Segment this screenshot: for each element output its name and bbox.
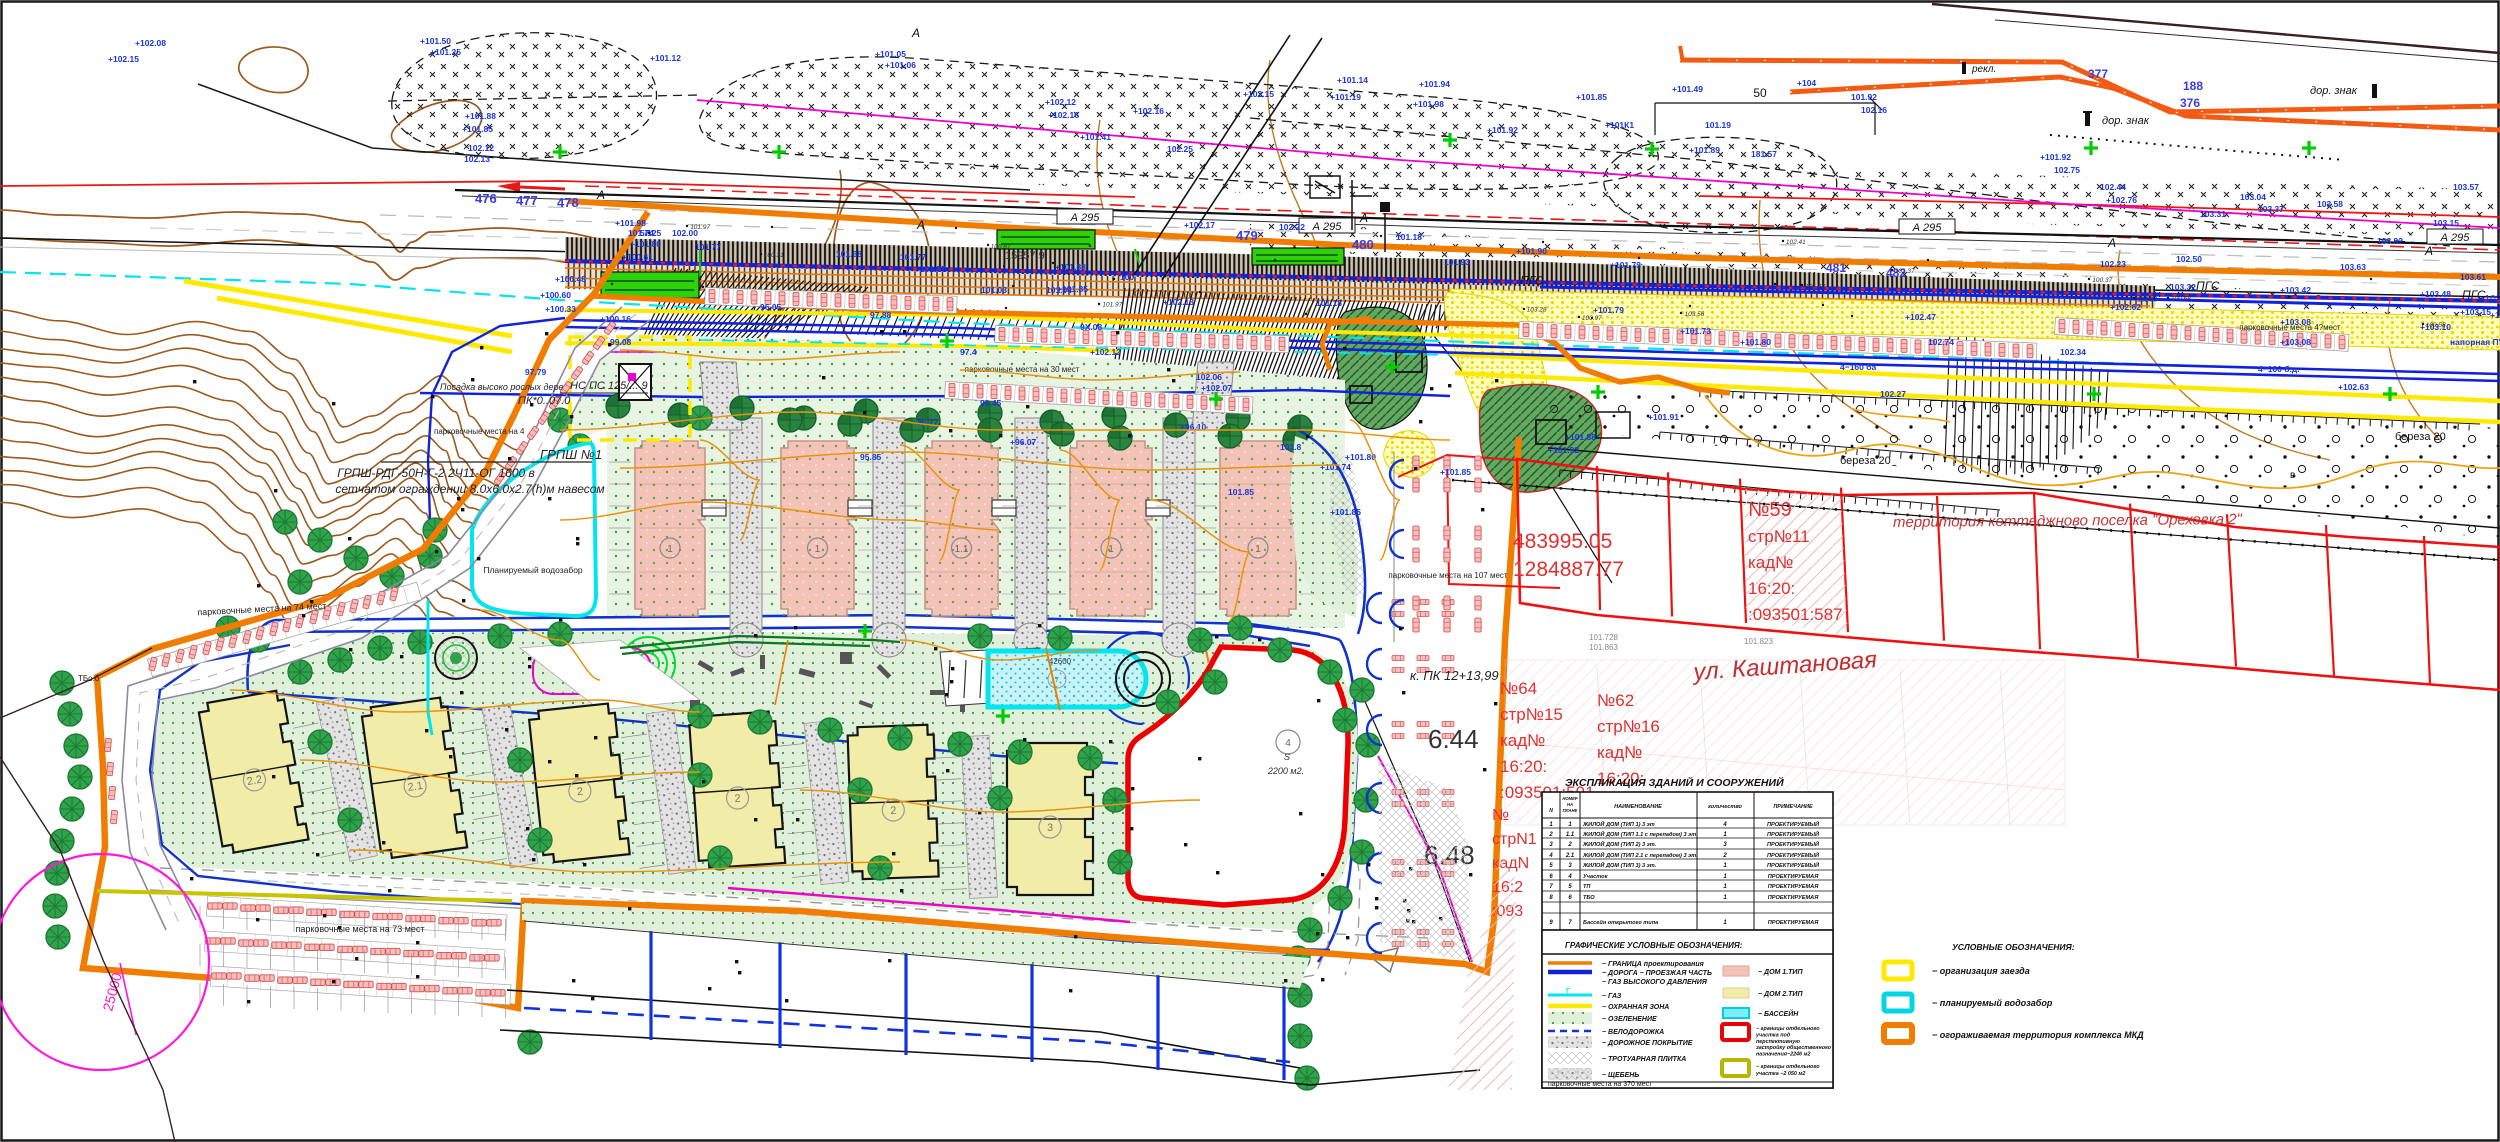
svg-text:4: 4 <box>1722 822 1727 828</box>
svg-text:+101.12: +101.12 <box>650 53 681 63</box>
svg-text:участка −2 050 м2: участка −2 050 м2 <box>1755 1071 1805 1077</box>
svg-text:ПГС: ПГС <box>2196 279 2220 293</box>
svg-text:+101.90: +101.90 <box>1516 246 1547 256</box>
svg-text:+101.50: +101.50 <box>420 36 451 46</box>
svg-text:4: 4 <box>1548 853 1553 859</box>
svg-text:ПРИМЕЧАНИЕ: ПРИМЕЧАНИЕ <box>1773 804 1813 810</box>
svg-text:102.16: 102.16 <box>1861 105 1887 115</box>
svg-text:ЖИЛОЙ ДОМ (ТИП 3) 3 эт.: ЖИЛОЙ ДОМ (ТИП 3) 3 эт. <box>1582 861 1657 869</box>
svg-text:А 295: А 295 <box>1312 221 1343 233</box>
svg-text:участка под: участка под <box>1755 1032 1791 1038</box>
svg-text:4: 4 <box>1285 738 1291 749</box>
svg-text:+102.08: +102.08 <box>135 38 166 48</box>
svg-text:102.34: 102.34 <box>2060 347 2086 357</box>
svg-text:+101.91: +101.91 <box>1648 412 1679 422</box>
svg-text:ПРОЕКТИРУЕМАЯ: ПРОЕКТИРУЕМАЯ <box>1768 920 1820 926</box>
svg-text:+101.49: +101.49 <box>1672 84 1703 94</box>
svg-text:+103.08: +103.08 <box>2280 337 2311 347</box>
svg-text:100.68: 100.68 <box>2171 296 2191 303</box>
svg-text:101.97: 101.97 <box>690 224 710 231</box>
svg-text:2: 2 <box>1548 832 1553 838</box>
svg-text:− ДОРОЖНОЕ ПОКРЫТИЕ: − ДОРОЖНОЕ ПОКРЫТИЕ <box>1602 1040 1693 1047</box>
svg-text:2: 2 <box>1567 842 1572 848</box>
svg-text:+101.92: +101.92 <box>1487 125 1518 135</box>
svg-text:парковочные места на 370 ме: парковочные места на 370 мест <box>1548 1081 1653 1088</box>
svg-text:ЖИЛОЙ ДОМ (ТИП 1) 3 эт: ЖИЛОЙ ДОМ (ТИП 1) 3 эт <box>1582 820 1655 828</box>
svg-text:181.57: 181.57 <box>1751 149 1777 159</box>
svg-text:+102.47: +102.47 <box>1905 312 1936 322</box>
svg-text:Планируемый водозабор: Планируемый водозабор <box>483 565 583 575</box>
svg-text:Г: Г <box>1566 988 1570 995</box>
svg-text:в: в <box>2290 470 2295 481</box>
svg-text:483995.05: 483995.05 <box>1513 530 1612 553</box>
svg-text:102.12: 102.12 <box>468 143 494 153</box>
svg-text:+101.73: +101.73 <box>1680 326 1711 336</box>
svg-text:101.823: 101.823 <box>1744 637 1773 646</box>
svg-text:− ОЗЕЛЕНЕНИЕ: − ОЗЕЛЕНЕНИЕ <box>1602 1016 1657 1023</box>
svg-text:102.22: 102.22 <box>1279 222 1305 232</box>
svg-text:к. ПК 12+13,99: к. ПК 12+13,99 <box>1410 668 1499 683</box>
svg-text:1: 1 <box>1255 544 1261 555</box>
svg-text:А: А <box>2107 236 2116 250</box>
svg-text:101.57: 101.57 <box>920 264 946 274</box>
svg-text:478: 478 <box>557 195 579 210</box>
svg-text:+101.73: +101.73 <box>1610 260 1641 270</box>
svg-text:101.37: 101.37 <box>1895 268 1915 275</box>
svg-text:− ГРАНИЦА проектирования: − ГРАНИЦА проектирования <box>1602 961 1704 968</box>
svg-text:количество: количество <box>1708 804 1742 810</box>
svg-text:застройку общественного: застройку общественного <box>1756 1044 1832 1051</box>
svg-text:1: 1 <box>815 544 821 555</box>
svg-text:НАИМЕНОВАНИЕ: НАИМЕНОВАНИЕ <box>1614 804 1662 810</box>
svg-text:− ДОМ 1.ТИП: − ДОМ 1.ТИП <box>1758 969 1803 976</box>
svg-text:рекл.: рекл. <box>1971 64 1996 75</box>
svg-text:№62: №62 <box>1597 691 1634 710</box>
svg-text:Бассейн открытого типа: Бассейн открытого типа <box>1583 919 1658 926</box>
svg-text:+101.06: +101.06 <box>885 60 916 70</box>
svg-text:№64: №64 <box>1500 679 1537 698</box>
svg-text:103.92: 103.92 <box>2377 236 2403 246</box>
svg-text:+101.98: +101.98 <box>615 218 646 228</box>
svg-text:+102.07: +102.07 <box>1201 383 1232 393</box>
svg-text:480: 480 <box>1352 237 1374 252</box>
svg-text:2.1: 2.1 <box>407 780 424 794</box>
svg-text:+101.85: +101.85 <box>1440 467 1471 477</box>
svg-text:479: 479 <box>1236 228 1258 243</box>
svg-text:103.04: 103.04 <box>2240 192 2266 202</box>
svg-text:Посадка высоко рослых дере: Посадка высоко рослых дере <box>440 382 564 392</box>
svg-text:+101.80: +101.80 <box>1740 337 1771 347</box>
svg-text:103.37: 103.37 <box>2258 204 2284 214</box>
svg-text:102.44: 102.44 <box>2100 182 2126 192</box>
svg-text:476: 476 <box>475 191 497 206</box>
svg-text:S: S <box>1284 752 1290 762</box>
svg-text:+102.15: +102.15 <box>108 54 139 64</box>
svg-text:ПРОЕКТИРУЕМЫЙ: ПРОЕКТИРУЕМЫЙ <box>1767 861 1820 869</box>
svg-text:7: 7 <box>1055 677 1059 684</box>
svg-text:N: N <box>1549 808 1553 814</box>
svg-text:+102.16: +102.16 <box>1048 110 1079 120</box>
svg-text:А 295: А 295 <box>2440 232 2471 244</box>
svg-text:16:20:: 16:20: <box>1500 757 1547 776</box>
svg-text:+101.98: +101.98 <box>1413 99 1444 109</box>
svg-text:ГРПШ №1: ГРПШ №1 <box>540 447 602 462</box>
svg-text:103.57: 103.57 <box>2453 182 2479 192</box>
svg-text:101.18: 101.18 <box>1396 232 1422 242</box>
svg-text:376: 376 <box>2180 96 2200 110</box>
svg-text:9Х.08: 9Х.08 <box>1080 322 1102 332</box>
svg-text:перспективную: перспективную <box>1756 1039 1800 1045</box>
svg-text:+102.15: +102.15 <box>1243 89 1274 99</box>
svg-text:береза 20: береза 20 <box>1840 455 1891 467</box>
svg-text:97.4: 97.4 <box>960 347 977 357</box>
svg-text:− огораживаемая территория ко: − огораживаемая территория комплекса МКД <box>1932 1030 2144 1040</box>
svg-text:+103.42: +103.42 <box>2280 285 2311 295</box>
svg-text:50: 50 <box>1753 86 1767 100</box>
svg-text:парковочные места на 30 мест: парковочные места на 30 мест <box>965 365 1080 374</box>
svg-text:+100.60: +100.60 <box>540 290 571 300</box>
svg-text:+102.12: +102.12 <box>1090 347 1121 357</box>
svg-text:Участок: Участок <box>1583 874 1609 880</box>
svg-text:1.1: 1.1 <box>955 544 969 555</box>
svg-text:А: А <box>911 26 920 40</box>
svg-text:№: № <box>1492 807 1509 824</box>
svg-text:парковочные места на 107 мест: парковочные места на 107 мест <box>1388 571 1508 580</box>
svg-text:− ОХРАННАЯ ЗОНА: − ОХРАННАЯ ЗОНА <box>1602 1004 1669 1011</box>
svg-text:102.27: 102.27 <box>1880 389 1906 399</box>
svg-text:ЖИЛОЙ ДОМ (ТИП 1.1 с перепадом: ЖИЛОЙ ДОМ (ТИП 1.1 с перепадом) 3 эт <box>1582 830 1696 838</box>
svg-text:− организация заезда: − организация заезда <box>1932 966 2030 976</box>
svg-text:стр№16: стр№16 <box>1597 717 1660 736</box>
svg-text:1: 1 <box>667 544 673 555</box>
svg-text:101.863: 101.863 <box>1589 643 1618 652</box>
svg-text:+101.89: +101.89 <box>1689 145 1720 155</box>
svg-text:101.19: 101.19 <box>1705 120 1731 130</box>
svg-text:101.77: 101.77 <box>695 242 721 252</box>
svg-text:УСЛОВНЫЕ ОБОЗНАЧЕНИЯ:: УСЛОВНЫЕ ОБОЗНАЧЕНИЯ: <box>1952 942 2075 952</box>
svg-text:101.77: 101.77 <box>900 252 926 262</box>
svg-text:+103.15: +103.15 <box>2460 307 2491 317</box>
svg-text:+102.62: +102.62 <box>2110 302 2141 312</box>
svg-text:103.63: 103.63 <box>2340 262 2366 272</box>
svg-text:102.75: 102.75 <box>2054 165 2080 175</box>
svg-text::093501:587: :093501:587 <box>1748 605 1843 624</box>
svg-text:477: 477 <box>516 193 538 208</box>
svg-text:100: 100 <box>1120 272 1134 282</box>
svg-text:+101.85: +101.85 <box>462 124 493 134</box>
svg-text:А: А <box>916 218 925 232</box>
svg-text:101.04: 101.04 <box>1046 285 1072 295</box>
svg-text:4: 4 <box>1567 874 1572 880</box>
svg-text:103.28: 103.28 <box>1527 307 1547 314</box>
svg-text:+101.74: +101.74 <box>1320 462 1351 472</box>
svg-text:+101.88: +101.88 <box>1565 432 1596 442</box>
svg-text:ТБо.б: ТБо.б <box>78 674 100 683</box>
svg-text:2: 2 <box>1722 853 1727 859</box>
svg-text:103.61: 103.61 <box>2460 272 2486 282</box>
svg-text:102.41: 102.41 <box>1786 239 1806 246</box>
svg-text:+101.19: +101.19 <box>1330 92 1361 102</box>
svg-text:+100.61: +100.61 <box>622 252 653 262</box>
svg-text:101.67: 101.67 <box>1805 283 1825 290</box>
svg-text:+104: +104 <box>1797 78 1816 88</box>
svg-text:парковочные места на 4: парковочные места на 4 <box>434 427 525 436</box>
svg-text:3: 3 <box>1047 822 1053 834</box>
svg-text:+10Х15: +10Х15 <box>2490 310 2500 320</box>
svg-text:+101.25: +101.25 <box>430 47 461 57</box>
svg-text:ПРОЕКТИРУЕМЫЙ: ПРОЕКТИРУЕМЫЙ <box>1767 820 1820 828</box>
svg-text:+101.94: +101.94 <box>1419 79 1450 89</box>
svg-text:А 295: А 295 <box>1912 222 1943 234</box>
svg-text:ПРОЕКТИРУЕМАЯ: ПРОЕКТИРУЕМАЯ <box>1768 874 1820 880</box>
svg-text:береза 20: береза 20 <box>2395 431 2446 443</box>
svg-text:102.23: 102.23 <box>2100 259 2126 269</box>
svg-text:103.15: 103.15 <box>2433 218 2459 228</box>
svg-text:+101.41: +101.41 <box>1080 132 1111 142</box>
svg-text:дор. знак: дор. знак <box>2310 85 2358 97</box>
svg-text:ПРОЕКТИРУЕМАЯ: ПРОЕКТИРУЕМАЯ <box>1768 895 1820 901</box>
svg-text:1284887.77: 1284887.77 <box>1513 558 1624 581</box>
svg-text:− границы отдельного: − границы отдельного <box>1756 1064 1820 1070</box>
svg-text:А: А <box>1359 211 1368 225</box>
svg-text:ПГС: ПГС <box>1520 273 1544 288</box>
svg-text:4−160 б.д.: 4−160 б.д. <box>2258 364 2300 374</box>
svg-text:4−160 ба: 4−160 ба <box>1840 362 1876 372</box>
svg-text:+101.92: +101.92 <box>2040 152 2071 162</box>
svg-text:100.37: 100.37 <box>2092 277 2112 284</box>
svg-text:2: 2 <box>734 793 741 805</box>
svg-text:ГРАФИЧЕСКИЕ УСЛОВНЫЕ ОБОЗНАЧЕН: ГРАФИЧЕСКИЕ УСЛОВНЫЕ ОБОЗНАЧЕНИЯ: <box>1565 941 1743 950</box>
svg-text:102.74: 102.74 <box>1928 337 1954 347</box>
svg-text:101.8: 101.8 <box>1280 442 1302 452</box>
svg-text:стрN1: стрN1 <box>1492 831 1537 848</box>
svg-text:ТБО: ТБО <box>1583 895 1595 901</box>
svg-text:№59: №59 <box>1748 499 1792 521</box>
svg-text:15957.9: 15957.9 <box>1005 250 1045 262</box>
svg-text:2.1: 2.1 <box>1565 853 1575 859</box>
svg-text:+101.85: +101.85 <box>1576 92 1607 102</box>
svg-text:102.13: 102.13 <box>464 154 490 164</box>
svg-text:101.728: 101.728 <box>1589 633 1618 642</box>
svg-text:напорная ПVзй10: напорная ПVзй10 <box>2450 337 2500 347</box>
svg-text:•103.54: •103.54 <box>2481 294 2500 305</box>
svg-text:+103.48: +103.48 <box>2420 289 2451 299</box>
svg-text:101.18: 101.18 <box>1316 298 1342 308</box>
svg-text:− ДОМ 2.ТИП: − ДОМ 2.ТИП <box>1758 991 1803 998</box>
svg-text:+102.63: +102.63 <box>2338 382 2369 392</box>
svg-text:НС ПС 125/... 9: НС ПС 125/... 9 <box>570 380 648 392</box>
svg-text:1.1: 1.1 <box>1566 832 1575 838</box>
svg-text:НА: НА <box>1567 802 1573 807</box>
svg-text:101.93: 101.93 <box>1444 257 1470 267</box>
svg-text:1: 1 <box>1108 544 1114 555</box>
svg-text:101.85: 101.85 <box>1228 487 1254 497</box>
svg-text:+100.16: +100.16 <box>600 314 631 324</box>
svg-text:102.50: 102.50 <box>2176 254 2202 264</box>
svg-text:100.87: 100.87 <box>991 243 1011 250</box>
svg-text:ЖИЛОЙ ДОМ (ТИП 2) 3 эт.: ЖИЛОЙ ДОМ (ТИП 2) 3 эт. <box>1582 840 1657 848</box>
svg-text:кад№: кад№ <box>1748 553 1793 572</box>
svg-text:+102.13: +102.13 <box>1163 297 1194 307</box>
svg-text:ТП: ТП <box>1583 884 1591 890</box>
svg-text:101.03: 101.03 <box>981 285 1007 295</box>
svg-text:+101.92: +101.92 <box>1548 445 1579 455</box>
svg-text:− ДОРОГА − ПРОЕЗЖАЯ ЧАСТЬ: − ДОРОГА − ПРОЕЗЖАЯ ЧАСТЬ <box>1602 970 1712 977</box>
svg-text:− границы отдельного: − границы отдельного <box>1756 1026 1820 1032</box>
svg-text:101.97: 101.97 <box>1102 302 1122 309</box>
svg-text:ПРОЕКТИРУЕМАЯ: ПРОЕКТИРУЕМАЯ <box>1768 884 1820 890</box>
svg-text:ГРПШ-РДГ-50Н-Г-2.2Ч11-ОГ 1600: ГРПШ-РДГ-50Н-Г-2.2Ч11-ОГ 1600 в <box>337 466 535 480</box>
svg-text:+102.12: +102.12 <box>1045 97 1076 107</box>
svg-text:+102.76: +102.76 <box>2106 195 2137 205</box>
svg-text:+102.17: +102.17 <box>1184 220 1215 230</box>
svg-text:101.74: 101.74 <box>628 228 654 238</box>
svg-text:99.08: 99.08 <box>610 337 632 347</box>
svg-text:481: 481 <box>1826 261 1846 275</box>
svg-text:− ВЕЛОДОРОЖКА: − ВЕЛОДОРОЖКА <box>1602 1029 1664 1036</box>
svg-text:97.88: 97.88 <box>870 310 892 320</box>
svg-text:+101.85: +101.85 <box>1330 507 1361 517</box>
svg-text:16:20:: 16:20: <box>1748 579 1795 598</box>
svg-text:дор. знак: дор. знак <box>2102 115 2150 127</box>
svg-text:96.45: 96.45 <box>980 398 1002 408</box>
svg-text:42600: 42600 <box>1049 657 1072 666</box>
svg-text:− БАССЕЙН: − БАССЕЙН <box>1758 1009 1799 1018</box>
svg-text:− ГАЗ ВЫСОКОГО ДАВЛЕНИЯ: − ГАЗ ВЫСОКОГО ДАВЛЕНИЯ <box>1602 979 1708 986</box>
svg-text:территория коттеджново посел: территория коттеджново поселка "Ореховка… <box>1893 511 2243 531</box>
svg-text:100.58: 100.58 <box>2426 322 2446 329</box>
svg-text:сетчатом ограждении 8.0х6.0х2: сетчатом ограждении 8.0х6.0х2.7(h)м наве… <box>335 482 604 496</box>
svg-text:6.44: 6.44 <box>1428 724 1479 754</box>
svg-text:ПРОЕКТИРУЕМЫЙ: ПРОЕКТИРУЕМЫЙ <box>1767 851 1820 859</box>
svg-text:ПК*0..07.0: ПК*0..07.0 <box>518 395 571 407</box>
svg-text:96.05: 96.05 <box>760 302 782 312</box>
svg-text:парковочные места на 73 мест: парковочные места на 73 мест <box>295 924 424 934</box>
svg-text:+101.14: +101.14 <box>1337 75 1368 85</box>
svg-text:97.79: 97.79 <box>525 367 547 377</box>
svg-text:+102.16: +102.16 <box>1133 106 1164 116</box>
svg-text:+100.33: +100.33 <box>545 304 576 314</box>
svg-text:− ТРОТУАРНАЯ ПЛИТКА: − ТРОТУАРНАЯ ПЛИТКА <box>1602 1056 1686 1063</box>
svg-text:стр№11: стр№11 <box>1748 527 1810 546</box>
svg-text:101.92: 101.92 <box>1851 92 1877 102</box>
svg-text:НОМЕР: НОМЕР <box>1562 796 1578 801</box>
svg-text:102.25: 102.25 <box>1167 144 1193 154</box>
svg-text:+101К1: +101К1 <box>1605 120 1634 130</box>
svg-text:377: 377 <box>2088 67 2108 81</box>
svg-text:+101.05: +101.05 <box>875 49 906 59</box>
svg-text:А: А <box>596 188 605 202</box>
svg-text:ПЛАНЕ: ПЛАНЕ <box>1563 808 1578 813</box>
svg-text:103.31: 103.31 <box>2200 209 2226 219</box>
svg-text:2200 м2.: 2200 м2. <box>1267 766 1304 776</box>
svg-text:+101.88: +101.88 <box>1055 262 1086 272</box>
svg-text:+101.80: +101.80 <box>630 239 661 249</box>
svg-text:2: 2 <box>576 786 583 799</box>
svg-text:А: А <box>2424 244 2433 258</box>
svg-text:ПРОЕКТИРУЕМЫЙ: ПРОЕКТИРУЕМЫЙ <box>1767 830 1820 838</box>
svg-text:ЭКСПЛИКАЦИЯ ЗДАНИЙ И СООРУЖЕНИ: ЭКСПЛИКАЦИЯ ЗДАНИЙ И СООРУЖЕНИЙ <box>1565 776 1784 789</box>
svg-text:кад№: кад№ <box>1597 743 1642 762</box>
svg-text:+101.79: +101.79 <box>1593 305 1624 315</box>
svg-text:+96.07: +96.07 <box>1010 437 1037 447</box>
svg-text:назначения−2246 м2: назначения−2246 м2 <box>1756 1052 1811 1058</box>
svg-text:102.83: 102.83 <box>2137 296 2157 303</box>
svg-text:стр№15: стр№15 <box>1500 705 1563 724</box>
svg-text:2: 2 <box>890 805 897 817</box>
svg-text:103.32: 103.32 <box>2170 282 2196 292</box>
svg-text:+101.88: +101.88 <box>465 111 496 121</box>
svg-text:− ГАЗ: − ГАЗ <box>1602 993 1622 1000</box>
svg-text:103.56: 103.56 <box>1685 311 1705 318</box>
svg-text:100.97: 100.97 <box>1582 315 1602 322</box>
svg-text:А 295: А 295 <box>1070 212 1101 224</box>
svg-text:+100.48: +100.48 <box>555 274 586 284</box>
svg-text:кад№: кад№ <box>1500 731 1545 750</box>
svg-text:101.68: 101.68 <box>836 249 862 259</box>
svg-text:103.58: 103.58 <box>2317 199 2343 209</box>
svg-text:− планируемый водозабор: − планируемый водозабор <box>1932 998 2053 1008</box>
svg-text:ПРОЕКТИРУЕМЫЙ: ПРОЕКТИРУЕМЫЙ <box>1767 840 1820 848</box>
svg-text:188: 188 <box>2183 79 2203 93</box>
svg-text:ЖИЛОЙ ДОМ (ТИП 2.1 с перепадом: ЖИЛОЙ ДОМ (ТИП 2.1 с перепадом) 3 эт. <box>1582 851 1698 859</box>
svg-text:100.21: 100.21 <box>764 252 784 259</box>
svg-text:+103.08: +103.08 <box>2280 317 2311 327</box>
svg-text:− ЩЕБЕНЬ: − ЩЕБЕНЬ <box>1602 1072 1639 1079</box>
